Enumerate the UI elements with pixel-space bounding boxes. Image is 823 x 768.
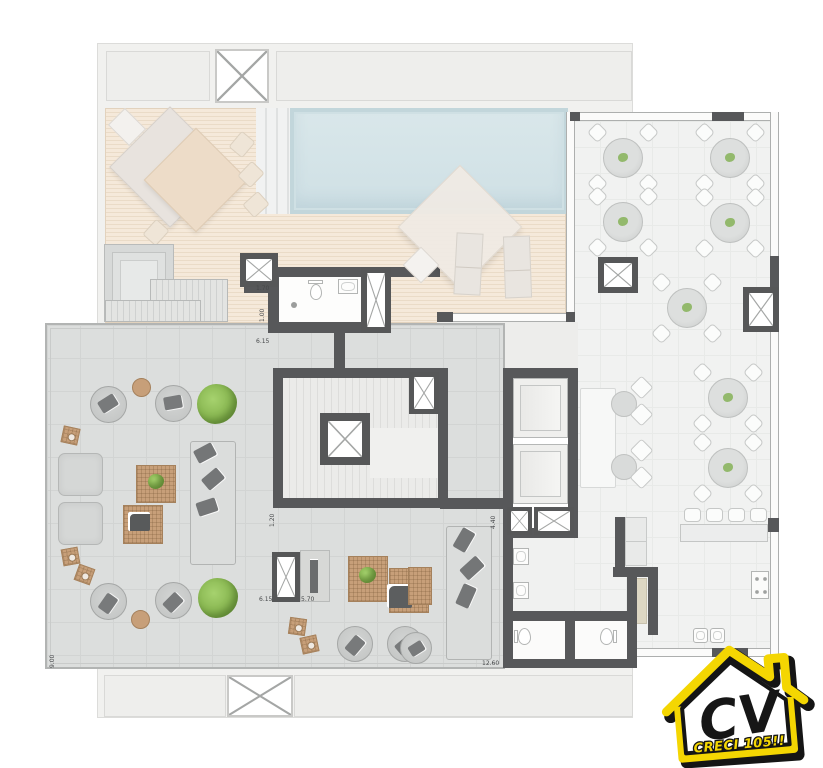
wall-segment [571, 611, 632, 621]
wall-segment [648, 577, 658, 635]
duct-shaft [598, 257, 638, 293]
wall-segment [712, 112, 744, 121]
dimension-label: 1.70 [256, 286, 269, 292]
dining-table-set [655, 276, 719, 340]
wall-segment [334, 322, 345, 368]
kitchen-sink [693, 628, 708, 643]
window-wall [770, 112, 779, 657]
planter-box [106, 51, 210, 101]
wall-segment [506, 611, 568, 621]
dimension-label: 9.00 [50, 655, 56, 668]
lounge-chair [155, 582, 192, 619]
sun-lounger [453, 232, 483, 295]
lounge-chair [400, 632, 432, 664]
toilet [600, 628, 613, 645]
duct-shaft [743, 287, 779, 332]
washbasin [513, 582, 529, 599]
duct-shaft [507, 507, 532, 535]
dimension-label: 6.15 [256, 339, 269, 345]
lounge-chair [337, 626, 373, 662]
stair-core-shaft [320, 413, 370, 465]
wicker-stool [299, 634, 319, 654]
dining-table-set [591, 126, 655, 190]
wall-segment [768, 518, 779, 532]
bar-stool [706, 508, 723, 522]
terrace-sofa [446, 526, 492, 660]
duct-shaft [534, 507, 574, 535]
floor-plan: 1.70 1.00 6.15 1.20 4.40 6.15 5.70 9.00 … [0, 0, 823, 768]
kitchen-sink [710, 628, 725, 643]
planter-box [104, 675, 226, 717]
tv-screen [310, 559, 318, 593]
wall-segment [566, 312, 575, 322]
roof-shaft [227, 675, 293, 717]
cooktop [751, 571, 769, 599]
dimension-label: 1.20 [270, 514, 276, 527]
elevator-car [513, 444, 568, 504]
bar-stool [728, 508, 745, 522]
dimension-label: 12.60 [482, 661, 499, 667]
elevator-shaft [240, 253, 278, 287]
coffee-table [408, 567, 432, 605]
dining-table-set [698, 191, 762, 255]
window-wall [570, 112, 778, 121]
elevator-car [513, 378, 568, 438]
window-wall [566, 112, 575, 322]
fire-pit [272, 552, 300, 602]
bar-stool [750, 508, 767, 522]
planter-box [294, 675, 633, 717]
stair-treads [105, 300, 201, 322]
wall-segment [437, 312, 453, 322]
bathroom-sink [338, 279, 358, 294]
agency-logo: CV CRECI 105!! [648, 642, 820, 768]
bar-counter [680, 524, 768, 542]
terrace-sofa [190, 441, 236, 565]
wicker-stool [288, 617, 307, 636]
wall-segment [570, 112, 580, 121]
toilet [310, 284, 322, 300]
cabinet [625, 541, 647, 566]
toilet-tank [613, 630, 617, 643]
toilet [518, 628, 531, 645]
wall-segment [613, 567, 658, 577]
dining-table-set [696, 436, 760, 500]
dining-table-set [696, 366, 760, 430]
planter-box [276, 51, 632, 101]
duct-shaft [361, 267, 391, 333]
dining-table-set [698, 126, 762, 190]
washbasin [513, 548, 529, 565]
cabinet [625, 517, 647, 542]
sun-lounger [503, 236, 532, 299]
wicker-stool [60, 425, 80, 445]
dimension-label: 6.15 [259, 597, 272, 603]
dining-table-set [591, 190, 655, 254]
wall-segment [503, 537, 513, 668]
dimension-label: 4.40 [491, 516, 497, 529]
window-wall [437, 313, 570, 322]
lounge-chair [90, 583, 127, 620]
toilet-tank [514, 630, 518, 643]
wicker-stool [61, 547, 81, 567]
roof-shaft [215, 49, 269, 103]
wicker-side-table [131, 610, 150, 629]
lounge-chair [155, 385, 192, 422]
dimension-label: 5.70 [301, 597, 314, 603]
lounge-chair [90, 386, 127, 423]
pouf [58, 453, 103, 496]
dimension-label: 1.00 [260, 309, 266, 322]
wall-segment [503, 659, 637, 668]
duct-shaft [409, 372, 439, 414]
stair-landing [370, 428, 438, 478]
serving-tray [128, 512, 150, 531]
wicker-side-table [132, 378, 151, 397]
wall-segment [627, 577, 637, 668]
bar-stool [684, 508, 701, 522]
pouf [58, 502, 103, 545]
shower-head [291, 302, 297, 308]
